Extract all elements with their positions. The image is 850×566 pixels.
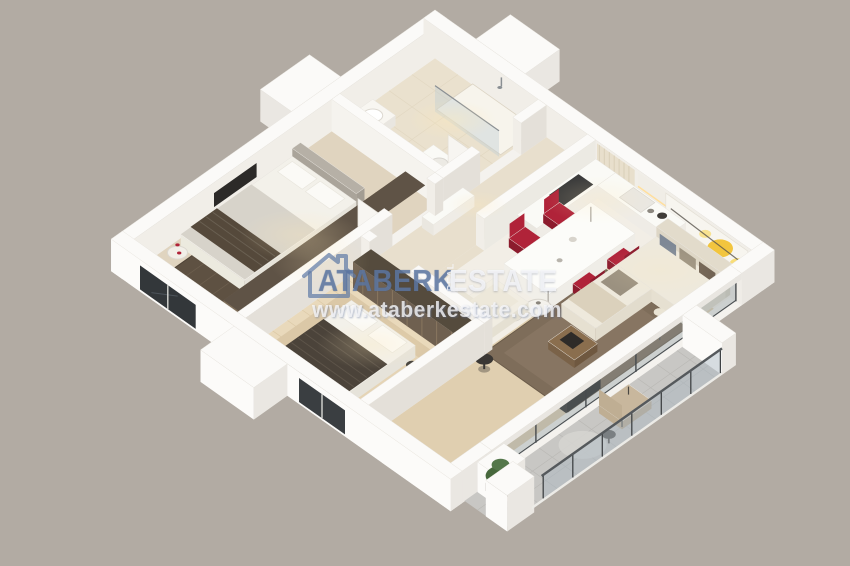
- floor-plan-render: [0, 0, 850, 566]
- floor-plan-screenshot: ATABERK REAL ESTATE www.ataberkestate.co…: [0, 0, 850, 566]
